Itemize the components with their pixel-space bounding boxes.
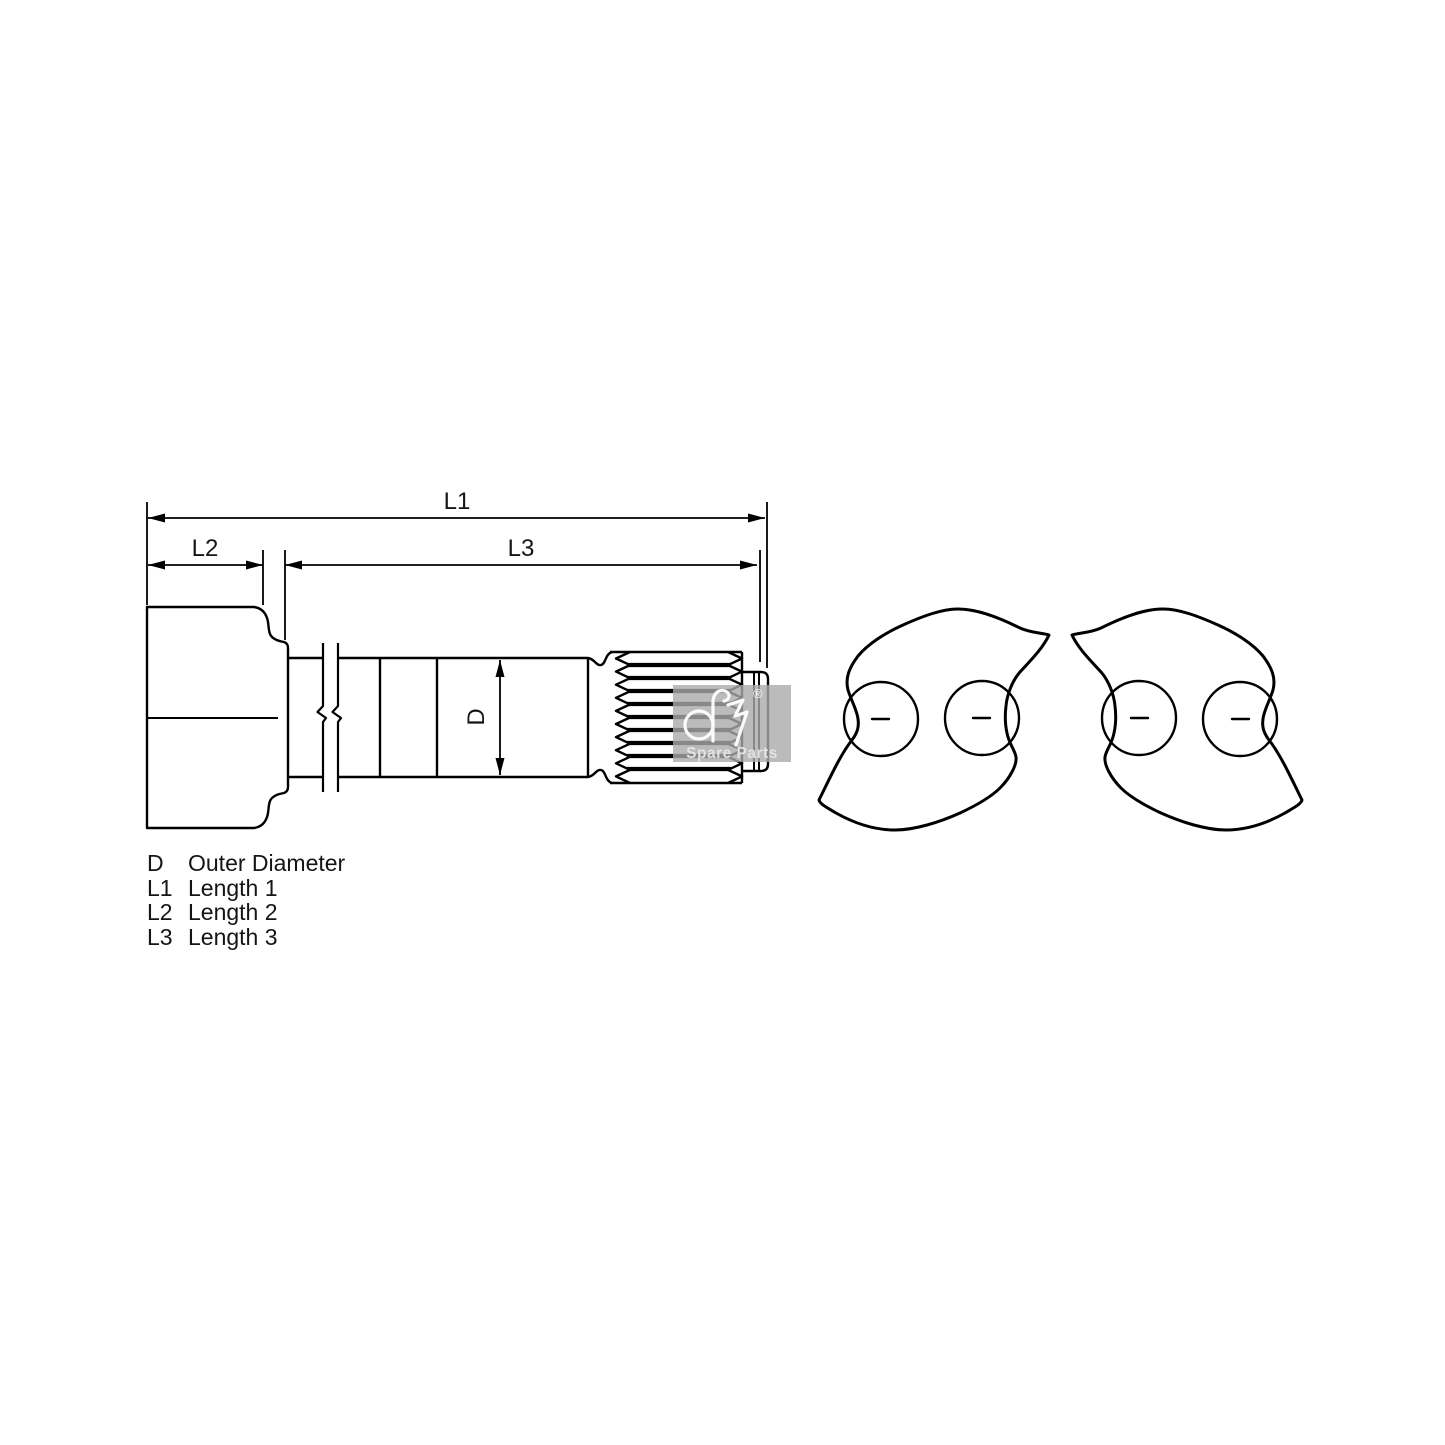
legend-symbol: D (147, 851, 188, 876)
dimension-extension-lines (147, 502, 767, 668)
s-cam-left (819, 609, 1049, 830)
arrow-right-icon (246, 561, 263, 570)
break-lines (318, 643, 342, 792)
legend-row: L2Length 2 (147, 900, 345, 925)
legend-label: Length 2 (188, 899, 278, 925)
legend-row: DOuter Diameter (147, 851, 345, 876)
s-cam-right (1072, 609, 1302, 830)
watermark-caption: Spare Parts (686, 745, 778, 762)
legend-label: Outer Diameter (188, 850, 345, 876)
spline-neck (588, 652, 612, 783)
arrow-left-icon (148, 561, 165, 570)
dt-watermark: ® Spare Parts (673, 685, 791, 762)
dimension-d: D (463, 660, 505, 775)
dimension-l1: L1 (148, 488, 765, 523)
brake-camshaft-diagram: L1 L2 L3 D (0, 0, 1445, 1445)
arrow-down-icon (496, 758, 505, 775)
arrow-left-icon (285, 561, 302, 570)
legend-label: Length 1 (188, 875, 278, 901)
arrow-right-icon (748, 514, 765, 523)
legend-label: Length 3 (188, 924, 278, 950)
legend-symbol: L3 (147, 925, 188, 950)
registered-mark-icon: ® (753, 686, 763, 701)
legend-symbol: L2 (147, 900, 188, 925)
legend-row: L1Length 1 (147, 876, 345, 901)
shaft-body (288, 658, 588, 777)
arrow-right-icon (740, 561, 757, 570)
arrow-up-icon (496, 660, 505, 677)
s-cam-profile (1072, 609, 1302, 830)
dimension-label-l1: L1 (444, 488, 471, 515)
technical-drawing-page: L1 L2 L3 D (0, 0, 1445, 1445)
dimension-l3: L3 (285, 535, 757, 570)
dimension-label-d: D (463, 708, 490, 725)
dimension-label-l3: L3 (508, 535, 535, 562)
legend: DOuter Diameter L1Length 1 L2Length 2 L3… (147, 851, 345, 949)
legend-row: L3Length 3 (147, 925, 345, 950)
dimension-label-l2: L2 (192, 535, 219, 562)
arrow-left-icon (148, 514, 165, 523)
legend-symbol: L1 (147, 876, 188, 901)
s-cam-profile (819, 609, 1049, 830)
dimension-l2: L2 (148, 535, 263, 570)
